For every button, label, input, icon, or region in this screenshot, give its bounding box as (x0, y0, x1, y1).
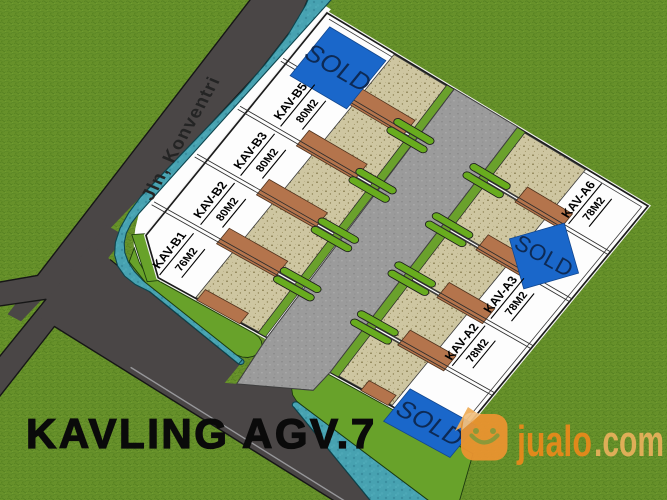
svg-text:KAVLING AGV.7: KAVLING AGV.7 (26, 410, 377, 457)
svg-text:jualo: jualo (516, 417, 592, 466)
svg-text:.com: .com (594, 417, 664, 466)
